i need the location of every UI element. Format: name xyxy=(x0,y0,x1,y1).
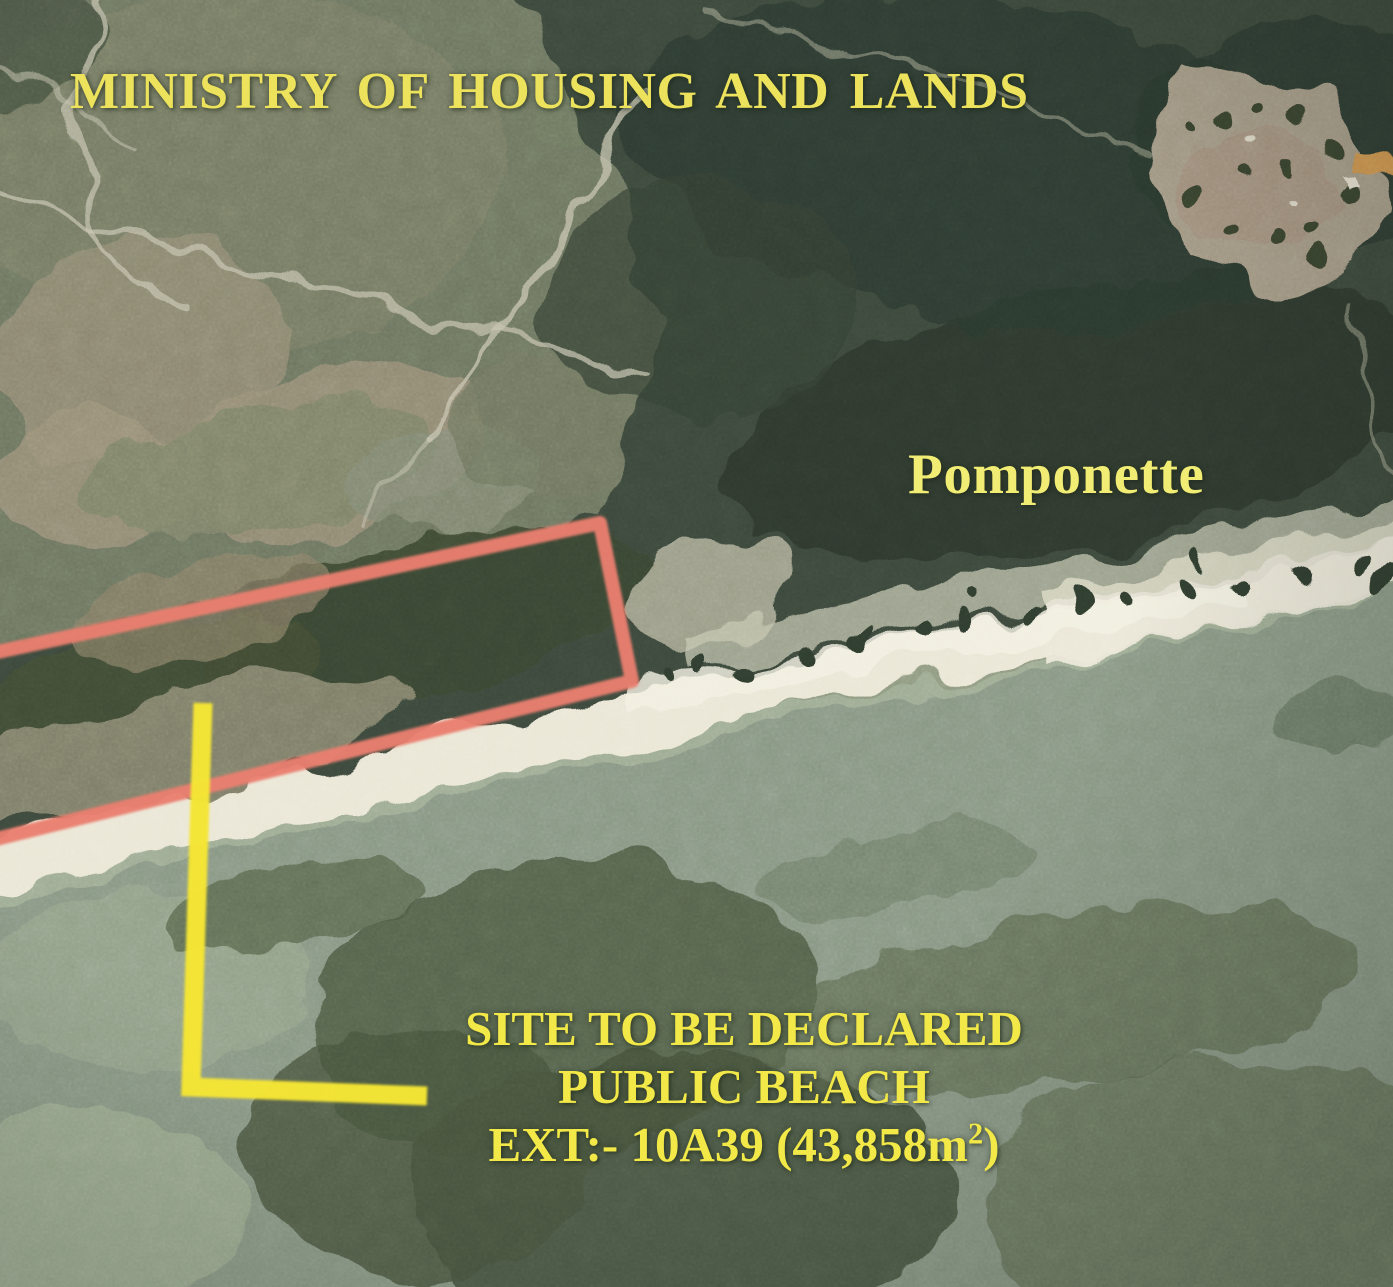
site-boundary-outline xyxy=(0,523,632,848)
map-annotation-layer xyxy=(0,0,1393,1287)
aerial-map-exhibit: MINISTRY OF HOUSING AND LANDS Pomponette… xyxy=(0,0,1393,1287)
